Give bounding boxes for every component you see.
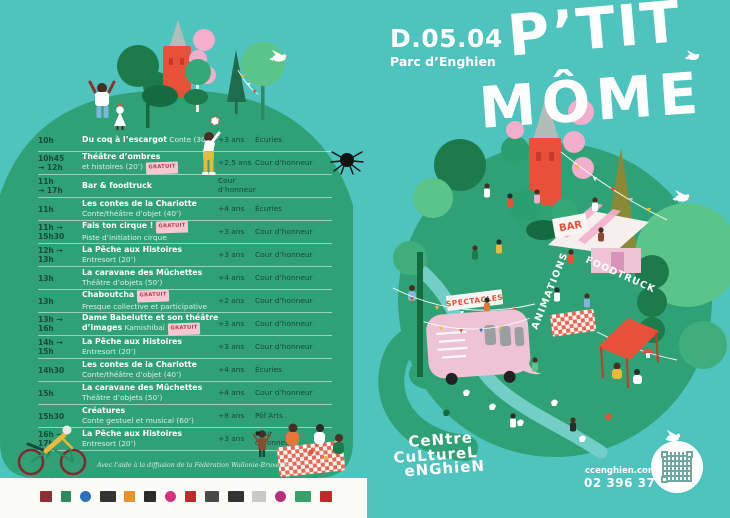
partner-logos-strip (0, 478, 367, 518)
schedule-row: 12h →13h La Pêche aux HistoiresEntresort… (38, 244, 332, 267)
event-location: Cour d’honneur (255, 159, 332, 168)
event-location: Écuries (255, 205, 332, 214)
event-age: +4 ans (218, 366, 255, 375)
poster: 10h Du coq à l’escargot Conte (30’) +3 a… (0, 0, 730, 518)
event-title: La Pêche aux HistoiresEntresort (20’) (82, 245, 218, 264)
event-location: Cour d’honneur (255, 228, 332, 237)
event-location: Cour d’honneur (255, 251, 332, 260)
event-time: 14h30 (38, 366, 82, 375)
event-title: Les contes de la ChariotteConte/théâtre … (82, 360, 218, 379)
schedule-row: 15h La caravane des MûchettesThéâtre d’o… (38, 382, 332, 405)
cc-logo: CeNtre CuLtureL eNGhieN (392, 430, 485, 480)
event-location: Cour d’honneur (255, 389, 332, 398)
credit-note: Avec l’aide à la diffusion de la Fédérat… (97, 462, 292, 470)
event-location: Cour d’honneur (255, 430, 291, 447)
schedule-row: 11h→ 17h Bar & foodtruck Cour d’honneur (38, 175, 332, 198)
schedule-row: 14h →15h La Pêche aux HistoiresEntresort… (38, 336, 332, 359)
event-location: Cour d’honneur (255, 343, 332, 352)
website-link[interactable]: ccenghien.com (585, 466, 657, 476)
schedule-row: 10h45→ 12h Théâtre d’ombreset histoires … (38, 152, 332, 175)
event-age: +4 ans (218, 205, 255, 214)
free-badge: GRATUIT (156, 221, 189, 234)
partner-logo (165, 491, 176, 502)
event-time: 13h (38, 297, 82, 306)
schedule-row: 13h ChaboutchaGRATUITFresque collective … (38, 290, 332, 313)
event-time: 15h30 (38, 412, 82, 421)
event-time: 10h (38, 136, 82, 145)
tree-icon (679, 321, 727, 369)
event-location: Cour d’honneur (255, 297, 332, 306)
qr-code-icon (651, 441, 703, 493)
qr-dove-icon (662, 428, 688, 444)
schedule-row: 14h30 Les contes de la ChariotteConte/th… (38, 359, 332, 382)
event-age: +3 ans (218, 320, 255, 329)
event-age: +3 ans (218, 136, 255, 145)
event-title: La caravane des MûchettesThéâtre d’objet… (82, 268, 218, 287)
schedule-row: 11h Les contes de la ChariotteConte/théâ… (38, 198, 332, 221)
event-title: Fais ton cirque !GRATUITPiste d’initiati… (82, 221, 218, 242)
event-age: +3 ans (218, 251, 255, 260)
event-title: ChaboutchaGRATUITFresque collective et p… (82, 290, 218, 311)
partner-logo (124, 491, 135, 502)
event-date: D.05.04 (390, 24, 503, 53)
schedule-row: 13h →16h Dame Babelutte et son théâtred’… (38, 313, 332, 336)
event-location: Pôl’Arts (255, 412, 332, 421)
schedule-row: 15h30 CréaturesConte gestuel et musical … (38, 405, 332, 428)
event-time: 11h →15h30 (38, 223, 82, 241)
bush-icon (142, 85, 178, 107)
partner-logo (40, 491, 52, 502)
event-title: La Pêche aux HistoiresEntresort (20’) (82, 429, 218, 448)
partner-logo (100, 491, 116, 502)
event-time: 10h45→ 12h (38, 154, 82, 172)
event-title: Théâtre d’ombreset histoires (20’)GRATUI… (82, 152, 218, 173)
schedule-table: 10h Du coq à l’escargot Conte (30’) +3 a… (38, 129, 332, 451)
dove-icon (672, 190, 692, 202)
event-time: 12h →13h (38, 246, 82, 264)
event-title: La Pêche aux HistoiresEntresort (20’) (82, 337, 218, 356)
bush-icon (184, 89, 208, 105)
free-badge: GRATUIT (137, 290, 170, 303)
event-age: +3 ans (218, 228, 255, 237)
partner-logo (144, 491, 156, 502)
event-time: 14h →15h (38, 338, 82, 356)
partner-logo (80, 491, 91, 502)
free-badge: GRATUIT (146, 161, 179, 174)
event-location: Cour d’honneur (255, 320, 332, 329)
partner-logo (61, 491, 71, 502)
event-time: 13h (38, 274, 82, 283)
event-age: +4 ans (218, 274, 255, 283)
event-age: +4 ans (218, 389, 255, 398)
event-time: 15h (38, 389, 82, 398)
event-location: Écuries (255, 136, 332, 145)
event-time: 16h →17h (38, 430, 82, 448)
event-age: +3 ans (218, 435, 255, 444)
schedule-row: 11h →15h30 Fais ton cirque !GRATUITPiste… (38, 221, 332, 244)
event-title: Du coq à l’escargot Conte (30’) (82, 135, 218, 145)
event-title: Bar & foodtruck (82, 181, 218, 191)
event-age: +3 ans (218, 343, 255, 352)
schedule-row: 10h Du coq à l’escargot Conte (30’) +3 a… (38, 129, 332, 152)
schedule-row: 16h →17h La Pêche aux HistoiresEntresort… (38, 428, 332, 451)
event-venue: Parc d’Enghien (390, 54, 496, 69)
tree-icon (413, 178, 453, 218)
partner-logo (185, 491, 196, 502)
partner-logo (320, 491, 332, 502)
event-age: +2,5 ans (218, 159, 255, 168)
free-badge: GRATUIT (168, 322, 201, 335)
partner-logo (205, 491, 219, 502)
dove-icon (684, 50, 701, 60)
event-title: Dame Babelutte et son théâtred’images Ka… (82, 313, 218, 334)
partner-logo (275, 491, 286, 502)
partner-logo (252, 491, 266, 502)
event-time: 11h (38, 205, 82, 214)
event-title: La caravane des MûchettesThéâtre d’objet… (82, 383, 218, 402)
event-title: CréaturesConte gestuel et musical (60’) (82, 406, 218, 425)
event-age: +8 ans (218, 412, 255, 421)
event-time: 11h→ 17h (38, 177, 82, 195)
event-title: Les contes de la ChariotteConte/théâtre … (82, 199, 218, 218)
event-time: 13h →16h (38, 315, 82, 333)
schedule-row: 13h La caravane des MûchettesThéâtre d’o… (38, 267, 332, 290)
partner-logo (295, 491, 311, 502)
partner-logo (228, 491, 244, 502)
event-location: Cour d’honneur (218, 177, 255, 194)
event-location: Écuries (255, 366, 332, 375)
event-location: Cour d’honneur (255, 274, 332, 283)
event-age: +2 ans (218, 297, 255, 306)
